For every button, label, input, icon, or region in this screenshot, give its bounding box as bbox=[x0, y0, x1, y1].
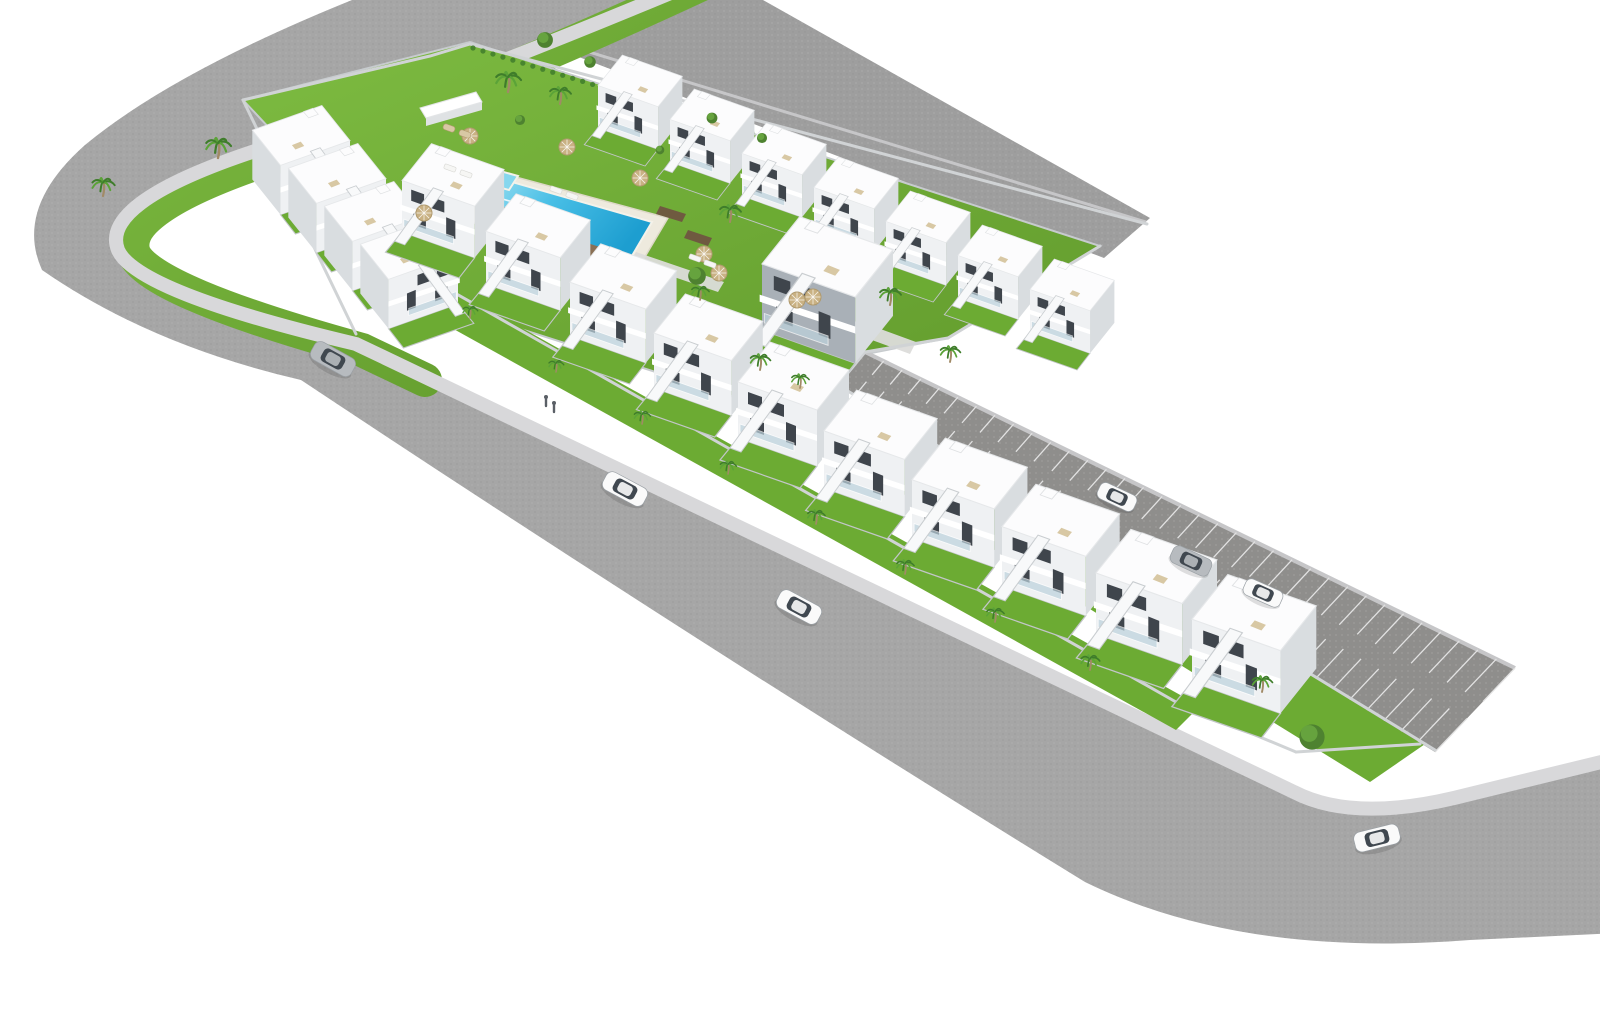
parasol bbox=[789, 292, 805, 308]
palm-trunk bbox=[950, 350, 951, 362]
palm-trunk bbox=[816, 514, 817, 525]
hedge bbox=[590, 82, 595, 87]
hedge bbox=[530, 64, 535, 69]
site-plan-render bbox=[0, 0, 1600, 1024]
bush-highlight bbox=[758, 133, 765, 140]
parasol bbox=[559, 139, 575, 155]
aerial-render-canvas bbox=[0, 0, 1600, 1024]
palm-trunk bbox=[1262, 680, 1263, 692]
hedge bbox=[560, 73, 565, 78]
palm-trunk bbox=[218, 143, 219, 158]
hedge bbox=[540, 67, 545, 72]
palm-trunk bbox=[1090, 659, 1091, 670]
hedge bbox=[570, 76, 575, 81]
person bbox=[544, 395, 548, 406]
bush bbox=[584, 56, 596, 68]
palm-frond bbox=[948, 350, 950, 358]
round-tree-highlight bbox=[689, 268, 701, 280]
person bbox=[552, 401, 556, 412]
hedge bbox=[550, 70, 555, 75]
bush bbox=[757, 133, 767, 143]
bush bbox=[707, 113, 718, 124]
bush-highlight bbox=[656, 146, 662, 152]
palm-trunk bbox=[642, 414, 643, 424]
bush-highlight bbox=[707, 113, 714, 120]
palm-trunk bbox=[103, 183, 104, 197]
palm-tree bbox=[941, 346, 961, 362]
round-tree bbox=[1299, 724, 1324, 749]
hedge bbox=[580, 79, 585, 84]
parasol bbox=[632, 170, 648, 186]
round-tree-highlight bbox=[1301, 725, 1318, 742]
bush-highlight bbox=[585, 57, 593, 65]
palm-trunk bbox=[890, 292, 891, 305]
bush bbox=[515, 115, 525, 125]
palm-trunk bbox=[508, 77, 509, 92]
palm-trunk bbox=[905, 564, 906, 575]
palm-trunk bbox=[730, 209, 731, 222]
hedge bbox=[510, 58, 515, 63]
bush bbox=[656, 146, 665, 155]
bush-highlight bbox=[538, 33, 549, 44]
palm-trunk bbox=[800, 378, 801, 389]
round-tree bbox=[688, 267, 706, 285]
palm-trunk bbox=[995, 612, 996, 623]
palm-trunk bbox=[560, 91, 561, 104]
bush-highlight bbox=[516, 115, 523, 122]
hedge bbox=[470, 45, 475, 50]
parasol bbox=[805, 289, 821, 305]
hedge bbox=[480, 48, 485, 53]
bush bbox=[537, 32, 553, 48]
palm-trunk bbox=[556, 363, 557, 372]
palm-trunk bbox=[700, 290, 701, 301]
hedge bbox=[520, 61, 525, 66]
palm-trunk bbox=[728, 464, 729, 474]
palm-trunk bbox=[760, 358, 761, 370]
hedge bbox=[500, 55, 505, 60]
palm-trunk bbox=[470, 309, 471, 318]
hedge bbox=[490, 51, 495, 56]
parasol bbox=[416, 205, 432, 221]
